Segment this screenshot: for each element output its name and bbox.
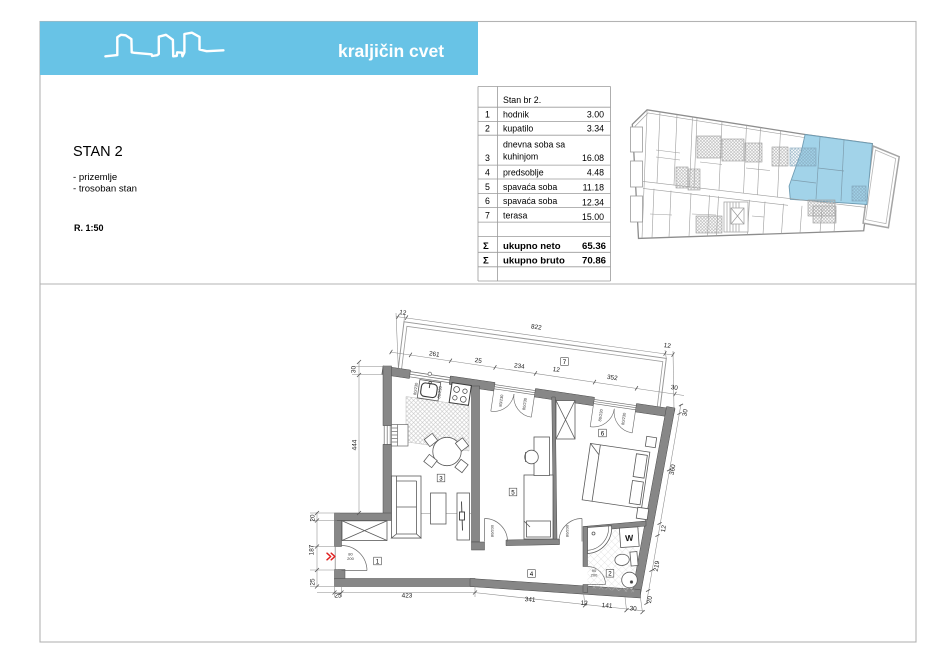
svg-text:R. 1:50: R. 1:50 bbox=[74, 223, 104, 233]
svg-text:423: 423 bbox=[402, 593, 413, 600]
svg-text:5: 5 bbox=[511, 489, 515, 496]
svg-text:3: 3 bbox=[485, 153, 490, 163]
svg-text:16.08: 16.08 bbox=[582, 153, 604, 163]
svg-text:4: 4 bbox=[530, 571, 534, 578]
svg-text:25: 25 bbox=[310, 578, 317, 586]
svg-text:12: 12 bbox=[580, 600, 588, 608]
svg-text:187: 187 bbox=[309, 544, 316, 555]
svg-text:70.86: 70.86 bbox=[582, 256, 606, 267]
svg-text:predsoblje: predsoblje bbox=[503, 168, 544, 178]
svg-text:2: 2 bbox=[608, 571, 612, 578]
svg-text:6: 6 bbox=[601, 430, 605, 437]
svg-text:Stan br 2.: Stan br 2. bbox=[503, 95, 541, 105]
svg-text:hodnik: hodnik bbox=[503, 110, 530, 120]
svg-text:4.48: 4.48 bbox=[587, 168, 604, 178]
svg-text:65.36: 65.36 bbox=[582, 241, 606, 252]
svg-text:80/200: 80/200 bbox=[490, 524, 495, 537]
svg-text:20: 20 bbox=[310, 514, 317, 522]
svg-text:1: 1 bbox=[485, 110, 490, 120]
svg-text:30: 30 bbox=[629, 605, 637, 613]
svg-text:200: 200 bbox=[347, 556, 354, 561]
svg-text:80/200: 80/200 bbox=[565, 524, 570, 537]
svg-text:spavaća soba: spavaća soba bbox=[503, 182, 557, 192]
svg-text:12.34: 12.34 bbox=[582, 198, 604, 208]
svg-text:kraljičin cvet: kraljičin cvet bbox=[338, 41, 444, 61]
svg-text:5: 5 bbox=[485, 182, 490, 192]
svg-text:Σ: Σ bbox=[483, 241, 489, 252]
svg-text:11.18: 11.18 bbox=[583, 183, 604, 193]
svg-text:terasa: terasa bbox=[503, 211, 528, 221]
svg-text:7: 7 bbox=[485, 211, 490, 221]
svg-text:kupatilo: kupatilo bbox=[503, 124, 533, 134]
svg-text:ukupno bruto: ukupno bruto bbox=[503, 256, 565, 267]
svg-text:444: 444 bbox=[352, 439, 359, 450]
svg-text:Σ: Σ bbox=[483, 256, 489, 267]
svg-text:341: 341 bbox=[525, 596, 537, 604]
svg-text:3.00: 3.00 bbox=[587, 110, 604, 120]
svg-text:3: 3 bbox=[439, 475, 443, 482]
svg-text:141: 141 bbox=[602, 602, 614, 610]
svg-text:dnevna soba sa: dnevna soba sa bbox=[503, 140, 565, 150]
svg-text:- trosoban stan: - trosoban stan bbox=[73, 184, 137, 195]
svg-text:2: 2 bbox=[485, 124, 490, 134]
svg-text:1: 1 bbox=[376, 558, 380, 565]
svg-text:30: 30 bbox=[351, 366, 358, 374]
svg-text:- prizemlje: - prizemlje bbox=[73, 172, 117, 183]
svg-text:spavaća soba: spavaća soba bbox=[503, 196, 557, 206]
svg-text:7: 7 bbox=[563, 359, 567, 366]
svg-text:15.00: 15.00 bbox=[582, 212, 604, 222]
svg-text:200: 200 bbox=[591, 573, 598, 578]
svg-text:STAN 2: STAN 2 bbox=[73, 144, 123, 160]
svg-text:kuhinjom: kuhinjom bbox=[503, 152, 538, 162]
svg-text:ukupno neto: ukupno neto bbox=[503, 241, 561, 252]
svg-text:25: 25 bbox=[334, 593, 342, 600]
svg-text:3.34: 3.34 bbox=[587, 124, 604, 134]
svg-text:4: 4 bbox=[485, 168, 490, 178]
svg-text:6: 6 bbox=[485, 196, 490, 206]
